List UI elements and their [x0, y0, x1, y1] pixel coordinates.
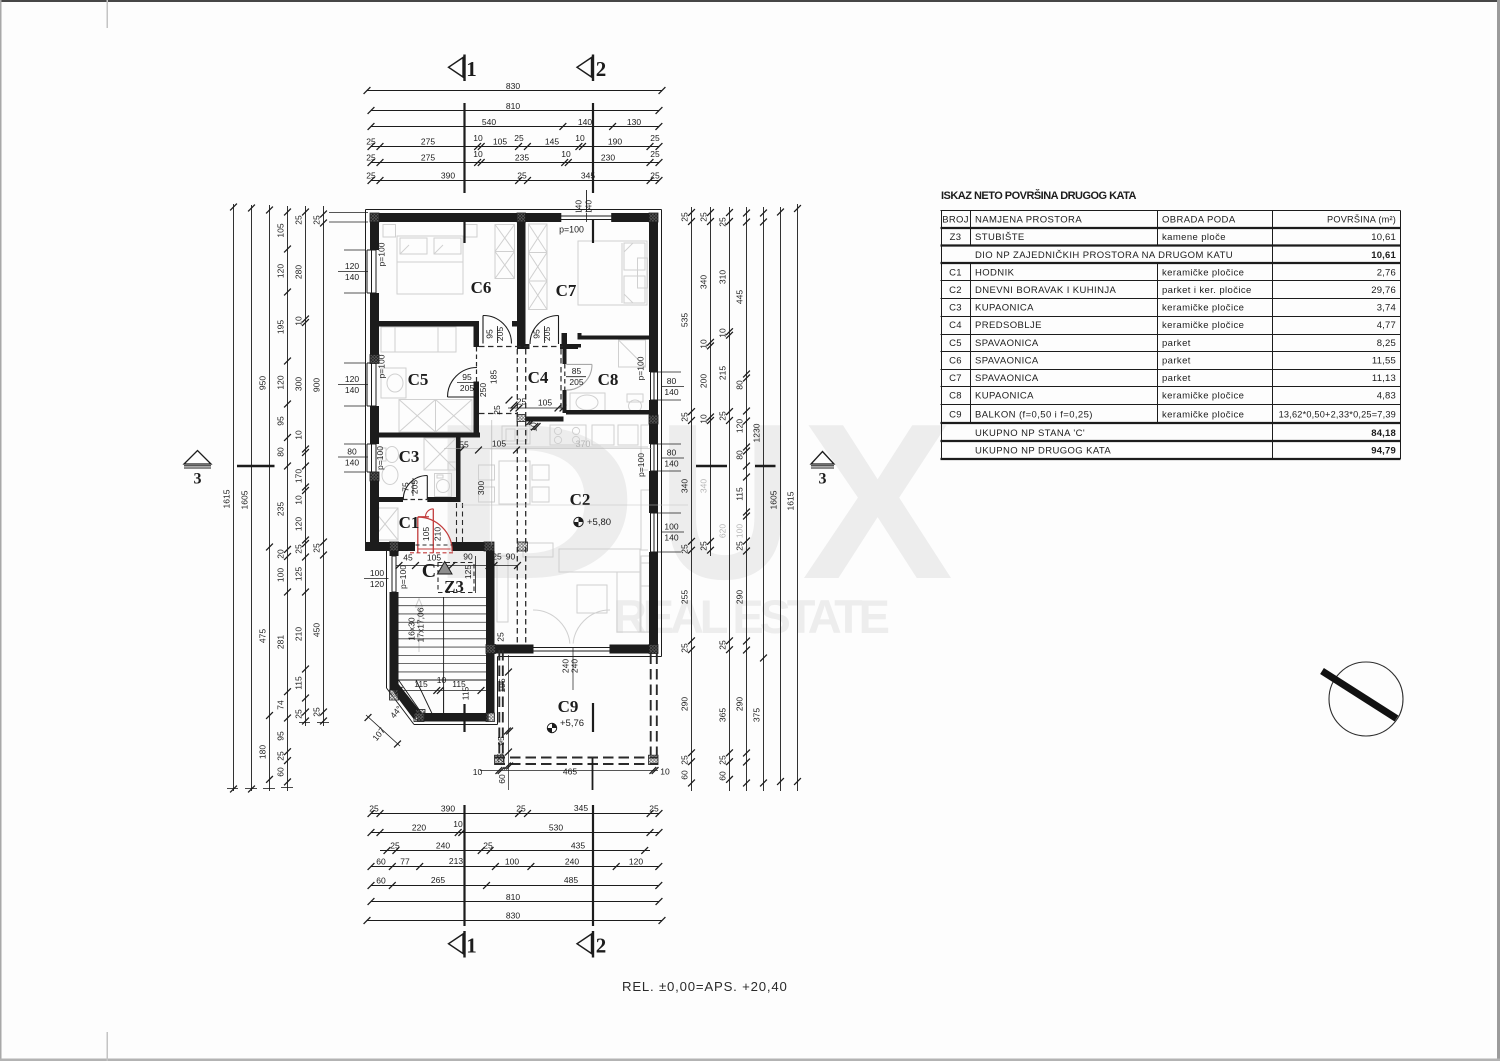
svg-text:kamene ploče: kamene ploče	[1162, 232, 1226, 243]
svg-text:275: 275	[421, 153, 435, 163]
svg-text:220: 220	[412, 823, 426, 833]
svg-text:120: 120	[345, 374, 359, 384]
svg-text:C9: C9	[558, 697, 579, 716]
svg-text:365: 365	[717, 708, 727, 722]
svg-text:8,25: 8,25	[1377, 338, 1396, 349]
svg-text:PREDSOBLJE: PREDSOBLJE	[975, 320, 1042, 331]
svg-text:60: 60	[376, 876, 386, 886]
svg-text:280: 280	[293, 265, 303, 279]
svg-text:235: 235	[275, 502, 285, 516]
svg-text:HODNIK: HODNIK	[975, 267, 1015, 278]
svg-text:900: 900	[311, 378, 321, 392]
svg-text:340: 340	[679, 479, 689, 493]
svg-text:parket: parket	[1162, 373, 1191, 384]
svg-text:25: 25	[496, 753, 506, 763]
svg-text:240: 240	[565, 857, 579, 867]
svg-text:X: X	[802, 377, 953, 626]
svg-text:255: 255	[679, 590, 689, 604]
svg-text:p=100: p=100	[377, 242, 387, 266]
svg-text:10: 10	[293, 495, 303, 505]
svg-text:p=100: p=100	[636, 453, 646, 477]
svg-text:C1: C1	[399, 513, 420, 532]
svg-text:25: 25	[514, 133, 524, 143]
svg-text:100: 100	[505, 857, 519, 867]
svg-text:1: 1	[466, 57, 477, 81]
svg-text:290: 290	[679, 697, 689, 711]
svg-text:84,18: 84,18	[1371, 428, 1396, 439]
svg-text:REL. ±0,00=APS. +20,40: REL. ±0,00=APS. +20,40	[622, 979, 788, 994]
svg-text:100: 100	[734, 524, 744, 538]
svg-text:SPAVAONICA: SPAVAONICA	[975, 355, 1039, 366]
svg-text:340: 340	[698, 275, 708, 289]
svg-text:80: 80	[275, 447, 285, 457]
svg-text:140: 140	[345, 272, 359, 282]
svg-text:140: 140	[574, 200, 584, 214]
svg-text:DIO NP ZAJEDNIČKIH PROSTORA NA: DIO NP ZAJEDNIČKIH PROSTORA NA DRUGOM KA…	[975, 250, 1233, 261]
svg-text:11,55: 11,55	[1372, 355, 1396, 366]
svg-text:3,74: 3,74	[1377, 303, 1396, 314]
svg-text:445: 445	[734, 290, 744, 304]
svg-text:130: 130	[627, 117, 641, 127]
svg-text:25: 25	[293, 544, 303, 554]
svg-text:530: 530	[549, 823, 563, 833]
svg-text:105: 105	[421, 527, 431, 541]
svg-text:240: 240	[570, 659, 580, 673]
svg-text:125: 125	[293, 567, 303, 581]
svg-text:25: 25	[717, 640, 727, 650]
svg-text:620: 620	[717, 524, 727, 538]
svg-text:300: 300	[476, 481, 486, 495]
svg-text:300: 300	[293, 377, 303, 391]
svg-text:keramičke pločice: keramičke pločice	[1162, 303, 1244, 314]
svg-text:205: 205	[410, 480, 420, 494]
svg-text:25: 25	[679, 643, 689, 653]
svg-text:950: 950	[257, 376, 267, 390]
svg-text:C2: C2	[949, 285, 962, 296]
svg-text:C6: C6	[471, 278, 492, 297]
svg-text:290: 290	[734, 590, 744, 604]
svg-text:45: 45	[403, 553, 413, 563]
svg-text:25: 25	[516, 804, 526, 814]
svg-text:265: 265	[431, 875, 445, 885]
svg-text:140: 140	[578, 117, 592, 127]
svg-text:105: 105	[493, 137, 507, 147]
svg-text:95: 95	[485, 329, 495, 339]
svg-text:p=100: p=100	[636, 356, 646, 380]
svg-text:120: 120	[275, 264, 285, 278]
svg-text:25: 25	[390, 841, 400, 851]
svg-text:340: 340	[698, 479, 708, 493]
svg-text:25: 25	[366, 137, 376, 147]
svg-text:25: 25	[492, 552, 502, 562]
svg-text:215: 215	[717, 366, 727, 380]
svg-text:C8: C8	[949, 391, 962, 402]
svg-text:25: 25	[492, 405, 502, 415]
svg-text:C5: C5	[949, 338, 962, 349]
svg-text:10: 10	[698, 339, 708, 349]
svg-text:BROJ: BROJ	[942, 215, 969, 226]
svg-text:parket: parket	[1162, 338, 1191, 349]
svg-text:310: 310	[717, 270, 727, 284]
svg-text:C1: C1	[949, 267, 962, 278]
svg-text:830: 830	[506, 81, 520, 91]
svg-text:keramičke pločice: keramičke pločice	[1162, 409, 1244, 420]
svg-text:120: 120	[275, 375, 285, 389]
svg-text:95: 95	[275, 416, 285, 426]
svg-text:25: 25	[734, 541, 744, 551]
svg-text:C3: C3	[949, 303, 962, 314]
svg-text:10: 10	[453, 819, 463, 829]
svg-text:25: 25	[293, 215, 303, 225]
svg-text:94,79: 94,79	[1371, 446, 1396, 457]
svg-text:195: 195	[497, 678, 507, 692]
svg-text:125: 125	[463, 565, 473, 579]
svg-text:Z3: Z3	[950, 232, 962, 243]
svg-text:210: 210	[433, 527, 443, 541]
svg-text:60: 60	[679, 770, 689, 780]
svg-text:55: 55	[459, 440, 469, 450]
svg-text:485: 485	[564, 875, 578, 885]
svg-text:C2: C2	[570, 490, 591, 509]
svg-text:parket i ker. pločice: parket i ker. pločice	[1162, 285, 1252, 296]
svg-text:20: 20	[275, 549, 285, 559]
svg-text:115: 115	[414, 679, 428, 689]
svg-text:100: 100	[275, 568, 285, 582]
svg-text:80: 80	[667, 376, 677, 386]
svg-text:UKUPNO NP DRUGOG KATA: UKUPNO NP DRUGOG KATA	[975, 446, 1111, 457]
svg-text:115: 115	[734, 487, 744, 501]
svg-text:C8: C8	[598, 370, 619, 389]
svg-text:80: 80	[734, 380, 744, 390]
svg-text:140: 140	[664, 533, 678, 543]
svg-text:C4: C4	[949, 320, 962, 331]
svg-text:830: 830	[506, 911, 520, 921]
svg-text:140: 140	[664, 459, 678, 469]
svg-text:120: 120	[370, 579, 384, 589]
svg-text:140: 140	[345, 385, 359, 395]
svg-text:185: 185	[489, 370, 499, 384]
svg-text:parket: parket	[1162, 355, 1191, 366]
svg-text:105: 105	[275, 223, 285, 237]
svg-text:25: 25	[311, 543, 321, 553]
svg-text:290: 290	[734, 697, 744, 711]
svg-text:1605: 1605	[768, 490, 778, 509]
svg-text:10: 10	[575, 133, 585, 143]
svg-text:1615: 1615	[785, 491, 795, 510]
svg-text:375: 375	[751, 708, 761, 722]
svg-text:C5: C5	[408, 370, 429, 389]
svg-text:205: 205	[460, 383, 474, 393]
svg-text:450: 450	[311, 623, 321, 637]
svg-text:95: 95	[532, 329, 542, 339]
svg-text:213: 213	[449, 856, 463, 866]
svg-text:10: 10	[561, 149, 571, 159]
svg-text:25: 25	[496, 632, 506, 642]
svg-text:p=100: p=100	[377, 354, 387, 378]
svg-text:120: 120	[293, 517, 303, 531]
svg-text:80: 80	[667, 448, 677, 458]
svg-text:SPAVAONICA: SPAVAONICA	[975, 373, 1039, 384]
svg-text:25: 25	[698, 541, 708, 551]
svg-text:UKUPNO NP STANA 'C': UKUPNO NP STANA 'C'	[975, 428, 1085, 439]
svg-text:240: 240	[436, 841, 450, 851]
svg-text:195: 195	[275, 320, 285, 334]
svg-text:10: 10	[473, 149, 483, 159]
svg-text:SPAVAONICA: SPAVAONICA	[975, 338, 1039, 349]
svg-text:95: 95	[462, 372, 472, 382]
svg-text:25: 25	[369, 804, 379, 814]
svg-text:25: 25	[698, 212, 708, 222]
svg-text:60: 60	[717, 771, 727, 781]
svg-text:535: 535	[679, 313, 689, 327]
svg-text:140: 140	[664, 387, 678, 397]
svg-text:230: 230	[601, 153, 615, 163]
svg-text:105: 105	[492, 439, 506, 449]
svg-text:3: 3	[819, 471, 827, 488]
svg-text:10: 10	[698, 414, 708, 424]
svg-text:60: 60	[497, 774, 507, 784]
svg-text:2: 2	[596, 57, 607, 81]
svg-text:KUPAONICA: KUPAONICA	[975, 303, 1034, 314]
svg-text:190: 190	[608, 137, 622, 147]
svg-text:25: 25	[679, 212, 689, 222]
svg-text:POVRŠINA (m²): POVRŠINA (m²)	[1327, 215, 1396, 225]
svg-text:29,76: 29,76	[1371, 285, 1396, 296]
svg-text:OBRADA PODA: OBRADA PODA	[1162, 215, 1236, 226]
svg-text:17x17,06: 17x17,06	[416, 607, 426, 642]
svg-text:10: 10	[717, 328, 727, 338]
svg-text:2: 2	[596, 934, 607, 958]
svg-text:345: 345	[574, 803, 588, 813]
svg-text:74: 74	[275, 700, 285, 710]
svg-text:1: 1	[466, 934, 477, 958]
svg-text:810: 810	[506, 101, 520, 111]
svg-text:25: 25	[311, 707, 321, 717]
svg-text:2,76: 2,76	[1377, 267, 1396, 278]
svg-text:BALKON (f=0,50 i f=0,25): BALKON (f=0,50 i f=0,25)	[975, 409, 1093, 420]
svg-text:180: 180	[257, 745, 267, 759]
svg-text:475: 475	[257, 629, 267, 643]
svg-text:10: 10	[473, 767, 483, 777]
svg-text:140: 140	[584, 200, 594, 214]
svg-text:100: 100	[664, 522, 678, 532]
svg-text:77: 77	[400, 857, 410, 867]
svg-text:4,77: 4,77	[1377, 320, 1396, 331]
svg-text:205: 205	[569, 377, 583, 387]
svg-text:140: 140	[345, 458, 359, 468]
svg-text:205: 205	[495, 327, 505, 341]
svg-text:25: 25	[311, 215, 321, 225]
svg-text:10,61: 10,61	[1371, 250, 1396, 261]
svg-text:90: 90	[506, 552, 516, 562]
svg-text:+5,76: +5,76	[560, 718, 584, 729]
svg-text:KUPAONICA: KUPAONICA	[975, 391, 1034, 402]
svg-text:80: 80	[347, 447, 357, 457]
svg-text:170: 170	[293, 469, 303, 483]
svg-text:10,61: 10,61	[1371, 232, 1396, 243]
svg-text:13,62*0,50+2,33*0,25=7,39: 13,62*0,50+2,33*0,25=7,39	[1279, 409, 1396, 419]
svg-text:C7: C7	[949, 373, 962, 384]
svg-text:100: 100	[370, 568, 384, 578]
svg-text:390: 390	[441, 171, 455, 181]
svg-text:C3: C3	[399, 447, 420, 466]
svg-text:25: 25	[366, 153, 376, 163]
svg-text:60: 60	[376, 857, 386, 867]
svg-text:1605: 1605	[239, 490, 249, 509]
svg-text:145: 145	[545, 137, 559, 147]
svg-text:25: 25	[650, 149, 660, 159]
svg-text:115: 115	[293, 676, 303, 690]
svg-text:1230: 1230	[751, 423, 761, 442]
svg-text:120: 120	[629, 857, 643, 867]
svg-text:281: 281	[275, 635, 285, 649]
svg-text:10: 10	[293, 316, 303, 326]
svg-text:C9: C9	[949, 409, 962, 420]
svg-text:80: 80	[734, 450, 744, 460]
svg-text:60: 60	[275, 767, 285, 777]
svg-text:540: 540	[482, 117, 496, 127]
svg-text:25: 25	[679, 755, 689, 765]
svg-text:p=100: p=100	[375, 446, 385, 470]
svg-text:10: 10	[437, 675, 447, 685]
svg-text:85: 85	[572, 366, 582, 376]
svg-text:10: 10	[473, 133, 483, 143]
svg-text:105: 105	[538, 398, 552, 408]
svg-text:p=100: p=100	[559, 225, 584, 235]
svg-text:210: 210	[293, 627, 303, 641]
svg-text:25: 25	[275, 751, 285, 761]
svg-text:25: 25	[293, 709, 303, 719]
svg-text:200: 200	[698, 374, 708, 388]
svg-text:25: 25	[650, 133, 660, 143]
svg-text:275: 275	[421, 137, 435, 147]
svg-text:435: 435	[571, 841, 585, 851]
svg-text:+5,80: +5,80	[587, 517, 611, 528]
svg-text:C7: C7	[556, 281, 577, 300]
svg-text:115: 115	[461, 686, 471, 700]
svg-text:11,13: 11,13	[1372, 373, 1396, 384]
svg-text:390: 390	[441, 804, 455, 814]
svg-text:25: 25	[679, 412, 689, 422]
svg-text:ISKAZ NETO POVRŠINA DRUGOG KAT: ISKAZ NETO POVRŠINA DRUGOG KATA	[941, 189, 1137, 202]
svg-text:25: 25	[717, 755, 727, 765]
svg-text:STUBIŠTE: STUBIŠTE	[975, 232, 1025, 243]
svg-text:keramičke pločice: keramičke pločice	[1162, 320, 1244, 331]
svg-text:C: C	[422, 560, 436, 582]
svg-text:95: 95	[496, 736, 506, 746]
svg-text:1615: 1615	[221, 489, 231, 508]
svg-text:90: 90	[463, 552, 473, 562]
svg-text:25: 25	[717, 217, 727, 227]
svg-text:10: 10	[660, 767, 670, 777]
svg-text:keramičke pločice: keramičke pločice	[1162, 391, 1244, 402]
svg-text:25: 25	[517, 171, 527, 181]
svg-text:3: 3	[194, 471, 202, 488]
svg-text:10: 10	[293, 430, 303, 440]
svg-text:235: 235	[515, 153, 529, 163]
svg-text:25: 25	[366, 171, 376, 181]
svg-text:205: 205	[542, 327, 552, 341]
svg-text:NAMJENA PROSTORA: NAMJENA PROSTORA	[975, 215, 1082, 226]
svg-text:keramičke pločice: keramičke pločice	[1162, 267, 1244, 278]
svg-text:DNEVNI BORAVAK I KUHINJA: DNEVNI BORAVAK I KUHINJA	[975, 285, 1116, 296]
svg-text:95: 95	[275, 731, 285, 741]
svg-text:25: 25	[717, 411, 727, 421]
svg-text:120: 120	[734, 419, 744, 433]
svg-text:120: 120	[345, 261, 359, 271]
svg-text:p=100: p=100	[398, 565, 408, 589]
svg-text:250: 250	[478, 383, 488, 397]
svg-text:4,83: 4,83	[1377, 391, 1396, 402]
svg-text:C4: C4	[528, 368, 549, 387]
svg-text:Z3: Z3	[444, 577, 464, 596]
svg-text:810: 810	[506, 892, 520, 902]
svg-text:370: 370	[576, 439, 591, 449]
svg-text:465: 465	[563, 767, 577, 777]
svg-text:C6: C6	[949, 355, 962, 366]
